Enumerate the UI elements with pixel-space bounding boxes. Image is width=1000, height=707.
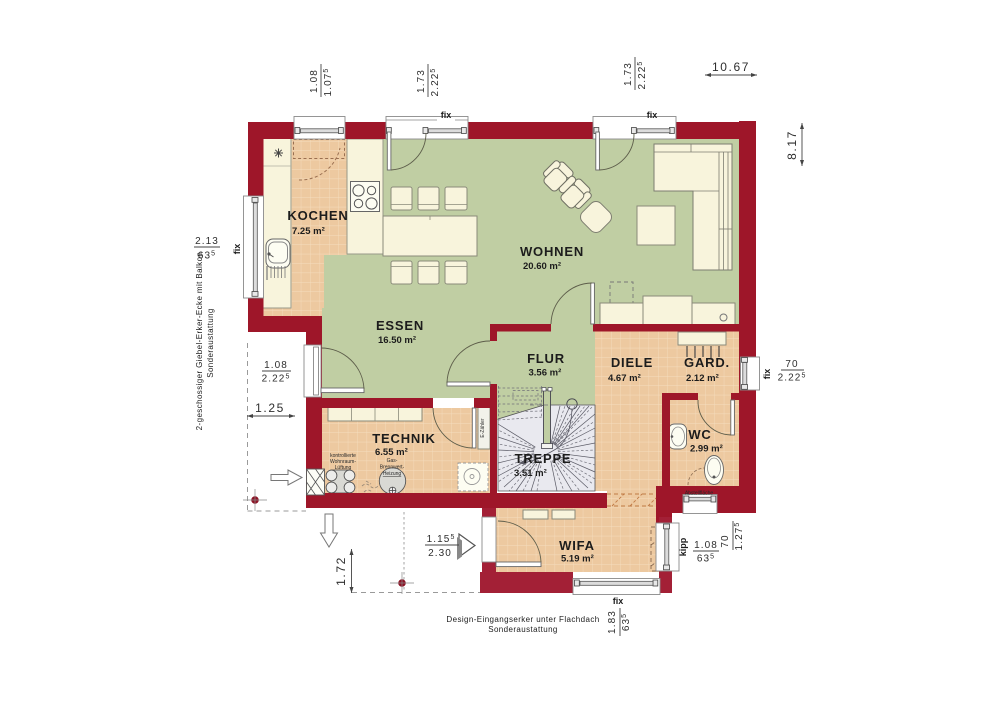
svg-text:KOCHEN: KOCHEN xyxy=(287,208,348,223)
svg-text:Sonderaustattung: Sonderaustattung xyxy=(488,625,558,634)
svg-text:1.72: 1.72 xyxy=(334,556,348,586)
svg-text:70: 70 xyxy=(785,359,798,370)
svg-text:FLUR: FLUR xyxy=(527,351,565,366)
svg-text:Gas-: Gas- xyxy=(387,458,398,464)
svg-text:2.30: 2.30 xyxy=(428,548,452,559)
svg-text:6.55 m²: 6.55 m² xyxy=(375,447,408,458)
svg-text:16.50 m²: 16.50 m² xyxy=(378,335,416,346)
svg-text:1.25: 1.25 xyxy=(255,401,285,415)
svg-text:2.99 m²: 2.99 m² xyxy=(690,444,723,455)
svg-text:1.73: 1.73 xyxy=(623,62,634,86)
svg-text:1.83: 1.83 xyxy=(607,610,618,634)
svg-text:3.56 m²: 3.56 m² xyxy=(529,368,562,379)
svg-text:Sonderaustattung: Sonderaustattung xyxy=(206,308,215,378)
svg-text:1.73: 1.73 xyxy=(416,69,427,93)
svg-text:3.51 m²: 3.51 m² xyxy=(514,468,547,479)
svg-text:1.08: 1.08 xyxy=(309,69,320,93)
svg-text:Heizung: Heizung xyxy=(383,471,402,477)
svg-text:fix: fix xyxy=(613,596,624,606)
svg-text:WC: WC xyxy=(688,427,711,442)
svg-text:2.13: 2.13 xyxy=(195,236,219,247)
svg-text:70: 70 xyxy=(720,534,731,547)
svg-text:2.12 m²: 2.12 m² xyxy=(686,373,719,384)
svg-text:10.67: 10.67 xyxy=(712,60,750,74)
svg-text:20.60 m²: 20.60 m² xyxy=(523,261,561,272)
svg-text:4.67 m²: 4.67 m² xyxy=(608,373,641,384)
svg-text:Brennwert-: Brennwert- xyxy=(380,465,405,471)
svg-text:kipp: kipp xyxy=(678,537,688,556)
svg-text:1.08: 1.08 xyxy=(694,540,718,551)
svg-text:7.25 m²: 7.25 m² xyxy=(292,226,325,237)
svg-text:fix: fix xyxy=(647,110,658,120)
svg-text:fix: fix xyxy=(441,110,452,120)
svg-text:DIELE: DIELE xyxy=(611,355,653,370)
svg-text:fix: fix xyxy=(762,369,772,380)
svg-text:Design-Eingangserker unter Fla: Design-Eingangserker unter Flachdach xyxy=(446,615,599,624)
svg-text:WIFA: WIFA xyxy=(559,538,595,553)
svg-text:Abstellfläche: Abstellfläche xyxy=(685,491,714,497)
svg-text:TECHNIK: TECHNIK xyxy=(372,431,435,446)
svg-text:WOHNEN: WOHNEN xyxy=(520,244,584,259)
svg-text:E-Zähler: E-Zähler xyxy=(480,418,486,438)
svg-text:fix: fix xyxy=(232,244,242,255)
svg-text:1.08: 1.08 xyxy=(264,360,288,371)
svg-text:5.19 m²: 5.19 m² xyxy=(561,554,594,565)
svg-text:2-geschossiger Giebel-Erker-Ec: 2-geschossiger Giebel-Erker-Ecke mit Bal… xyxy=(195,252,204,431)
svg-text:TREPPE: TREPPE xyxy=(515,451,572,466)
svg-text:8.17: 8.17 xyxy=(785,130,799,160)
svg-text:Lüftung: Lüftung xyxy=(335,465,352,471)
svg-text:ESSEN: ESSEN xyxy=(376,318,424,333)
svg-text:GARD.: GARD. xyxy=(684,355,730,370)
